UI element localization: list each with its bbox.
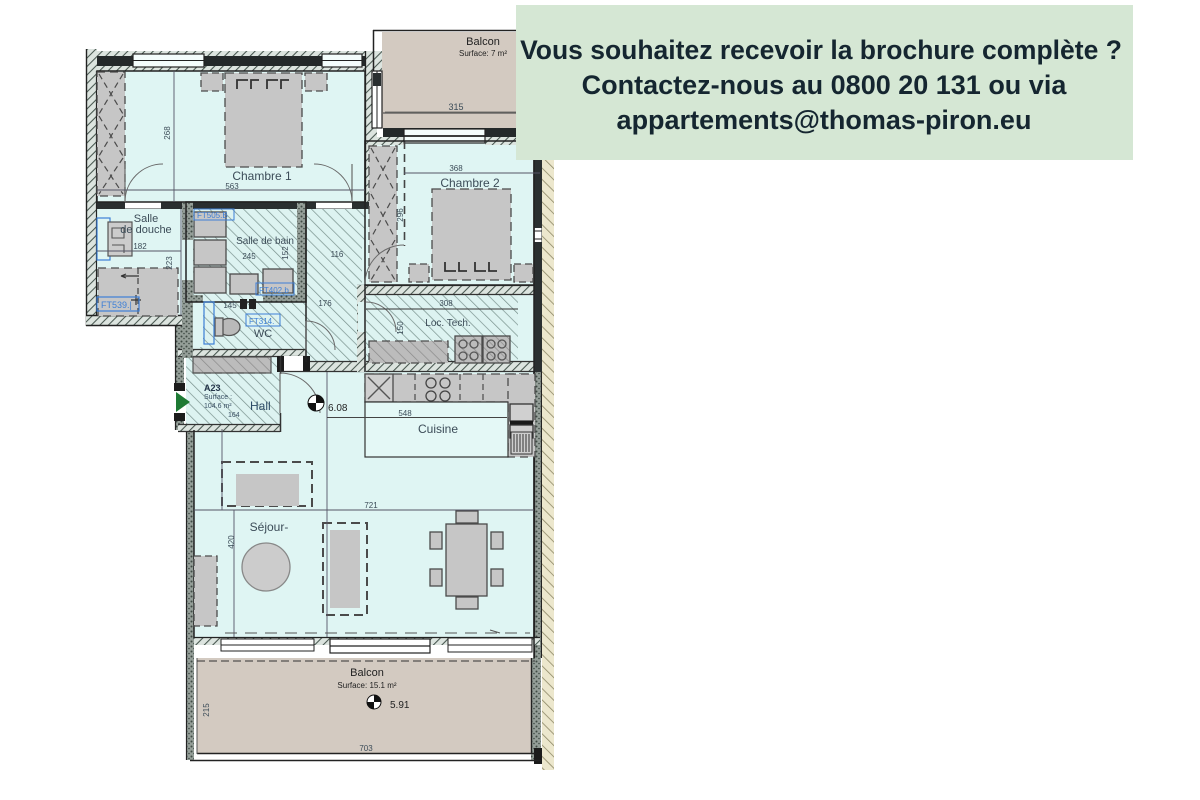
- svg-text:de douche: de douche: [120, 224, 171, 236]
- svg-text:Balcon: Balcon: [466, 36, 500, 48]
- svg-text:Surface :: Surface :: [204, 394, 232, 401]
- svg-text:223: 223: [165, 256, 174, 270]
- svg-text:Loc. Tech.: Loc. Tech.: [425, 318, 470, 329]
- svg-text:150: 150: [396, 321, 405, 335]
- svg-text:420: 420: [227, 535, 236, 549]
- svg-text:6.08: 6.08: [328, 403, 348, 414]
- svg-text:703: 703: [359, 744, 373, 753]
- svg-text:104.6 m²: 104.6 m²: [204, 403, 232, 410]
- svg-text:Hall: Hall: [250, 399, 271, 413]
- svg-text:Cuisine: Cuisine: [418, 422, 458, 436]
- svg-text:268: 268: [163, 126, 172, 140]
- svg-text:Contactez-nous au 0800 20 131: Contactez-nous au 0800 20 131 ou via: [582, 70, 1068, 100]
- svg-text:Chambre 2: Chambre 2: [440, 176, 500, 190]
- svg-text:215: 215: [202, 703, 211, 717]
- svg-text:176: 176: [318, 299, 332, 308]
- svg-text:5.91: 5.91: [390, 700, 410, 711]
- svg-text:164: 164: [228, 412, 240, 419]
- svg-text:296: 296: [396, 208, 405, 222]
- svg-text:721: 721: [364, 501, 378, 510]
- svg-text:appartements@thomas-piron.eu: appartements@thomas-piron.eu: [617, 105, 1032, 135]
- svg-text:FT402.b: FT402.b: [259, 286, 289, 295]
- svg-text:Salle de bain: Salle de bain: [236, 236, 294, 247]
- svg-text:145: 145: [223, 301, 237, 310]
- svg-text:152: 152: [281, 246, 290, 260]
- svg-text:FT505.B: FT505.B: [197, 211, 228, 220]
- svg-text:Surface: 7 m²: Surface: 7 m²: [459, 49, 507, 58]
- svg-text:245: 245: [242, 252, 256, 261]
- svg-text:Balcon: Balcon: [350, 667, 384, 679]
- svg-text:563: 563: [225, 182, 239, 191]
- svg-text:308: 308: [439, 299, 453, 308]
- svg-text:315: 315: [448, 102, 463, 112]
- svg-text:116: 116: [331, 250, 344, 259]
- svg-text:Vous souhaitez recevoir la bro: Vous souhaitez recevoir la brochure comp…: [520, 35, 1122, 65]
- svg-text:Séjour-: Séjour-: [250, 520, 289, 534]
- svg-text:A23: A23: [204, 383, 221, 393]
- svg-text:548: 548: [398, 409, 412, 418]
- svg-text:Surface: 15.1 m²: Surface: 15.1 m²: [337, 681, 396, 690]
- svg-text:WC: WC: [254, 328, 272, 340]
- svg-text:Chambre 1: Chambre 1: [232, 169, 292, 183]
- svg-text:FT314.: FT314.: [249, 317, 274, 326]
- svg-text:182: 182: [133, 242, 147, 251]
- svg-text:FT539.|: FT539.|: [101, 300, 132, 310]
- svg-text:368: 368: [449, 164, 463, 173]
